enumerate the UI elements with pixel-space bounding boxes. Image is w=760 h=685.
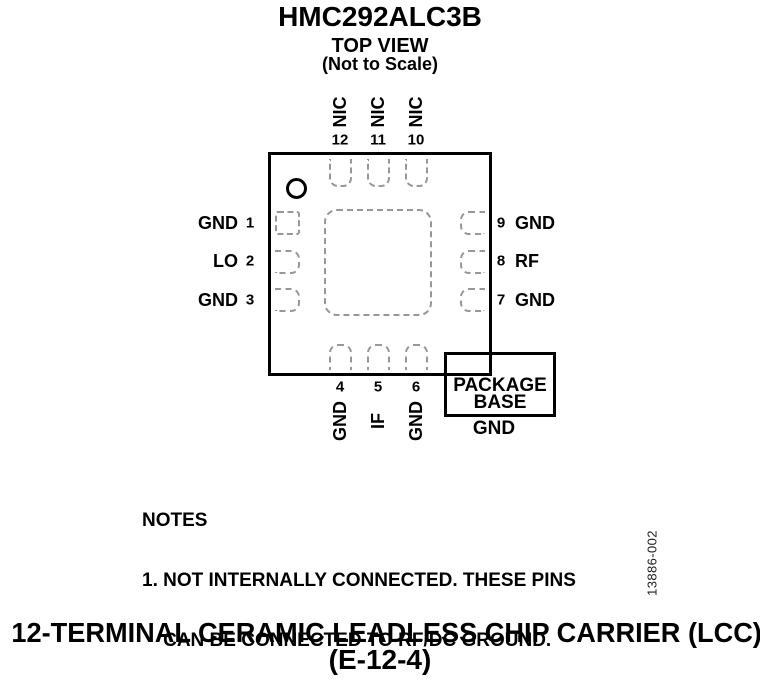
pad-pin-8 (460, 250, 485, 274)
pin-number-5: 5 (374, 380, 382, 395)
pin-name-6: GND (407, 401, 425, 441)
pad-pin-11 (367, 159, 390, 187)
pad-pin-10 (405, 159, 428, 187)
pin-name-4: GND (331, 401, 349, 441)
pin-name-8: RF (515, 251, 539, 271)
pin-name-12: NIC (331, 97, 349, 128)
notes-title: NOTES (142, 511, 579, 531)
pin-number-7: 7 (497, 293, 505, 308)
pin-number-6: 6 (412, 380, 420, 395)
note-line: 1. NOT INTERNALLY CONNECTED. THESE PINS (142, 571, 579, 591)
pin-number-9: 9 (497, 216, 505, 231)
pin-name-11: NIC (369, 97, 387, 128)
pin-number-3: 3 (246, 293, 254, 308)
pin-number-4: 4 (336, 380, 344, 395)
figure-number: 13886-002 (646, 530, 659, 596)
pin-name-3: GND (198, 290, 238, 310)
pad-pin-4 (329, 344, 352, 370)
exposed-pad (324, 209, 432, 316)
pin-name-5: IF (369, 413, 387, 429)
pad-pin-2 (275, 250, 300, 274)
pad-pin-5 (367, 344, 390, 370)
pad-pin-12 (329, 159, 352, 187)
pin-name-10: NIC (407, 97, 425, 128)
pin-number-8: 8 (497, 254, 505, 269)
pin-number-1: 1 (246, 216, 254, 231)
part-number-title: HMC292ALC3B (0, 3, 760, 31)
package-caption: 12-TERMINAL CERAMIC LEADLESS CHIP CARRIE… (11, 619, 748, 647)
pad-pin-9 (460, 211, 485, 235)
pin-number-12: 12 (332, 133, 349, 148)
package-base-net-label: GND (473, 419, 515, 439)
pin-number-11: 11 (370, 133, 386, 148)
pin-number-2: 2 (246, 254, 254, 269)
pin-number-10: 10 (408, 133, 425, 148)
pin-name-1: GND (198, 213, 238, 233)
pin-configuration-figure: HMC292ALC3B TOP VIEW (Not to Scale) NIC … (0, 0, 760, 685)
scale-note: (Not to Scale) (0, 55, 760, 73)
pin-name-2: LO (213, 251, 238, 271)
pad-pin-3 (275, 288, 300, 312)
pin-name-7: GND (515, 290, 555, 310)
pad-pin-1 (275, 211, 300, 235)
pad-pin-7 (460, 288, 485, 312)
package-base-box: PACKAGE BASE (444, 352, 556, 417)
pad-pin-6 (405, 344, 428, 370)
package-code: (E-12-4) (0, 646, 760, 674)
package-base-label-line2: BASE (474, 394, 527, 411)
top-view-label: TOP VIEW (0, 36, 760, 56)
pin1-marker-dot (286, 178, 307, 199)
pin-name-9: GND (515, 213, 555, 233)
